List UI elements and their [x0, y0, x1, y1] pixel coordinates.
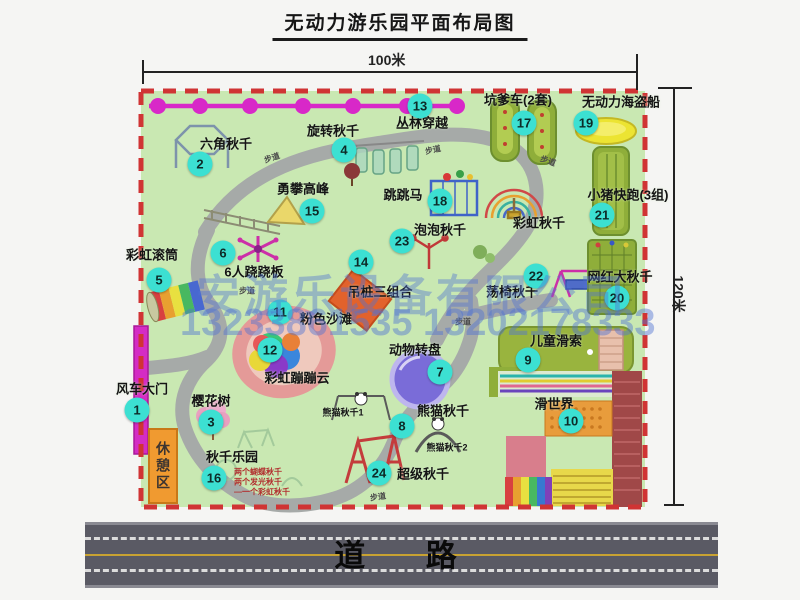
- extra-label-2: 熊猫秋千2: [426, 441, 467, 454]
- attraction-label-3: 樱花树: [191, 391, 230, 410]
- attraction-label-7: 动物转盘: [389, 340, 441, 359]
- attraction-badge-14: 14: [349, 250, 374, 275]
- attraction-badge-22: 22: [524, 264, 549, 289]
- attraction-badge-16: 16: [202, 466, 227, 491]
- walkway-label-4: 步道: [455, 317, 471, 328]
- attraction-badge-5: 5: [147, 268, 172, 293]
- swing-park-note-3: —一个彩虹秋千: [234, 487, 290, 498]
- road: 道 路: [85, 522, 718, 588]
- attraction-badge-21: 21: [590, 203, 615, 228]
- attraction-label-24: 超级秋千: [397, 464, 449, 483]
- attraction-label-14: 吊桩三组合: [347, 282, 412, 301]
- attraction-badge-8: 8: [390, 414, 415, 439]
- attraction-label-12: 彩虹蹦蹦云: [264, 368, 329, 387]
- attraction-badge-19: 19: [574, 111, 599, 136]
- attraction-label-1: 风车大门: [116, 379, 168, 398]
- attraction-label-11: 粉色沙滩: [300, 309, 352, 328]
- attraction-label-20: 网红大秋千: [587, 267, 652, 286]
- extra-label-1: 熊猫秋千1: [322, 406, 363, 419]
- attraction-label-21: 小猪快跑(3组): [588, 185, 669, 204]
- attraction-badge-15: 15: [300, 199, 325, 224]
- road-label: 道 路: [320, 531, 483, 576]
- extra-label-0: 彩虹秋千: [513, 213, 565, 232]
- attraction-badge-6: 6: [211, 241, 236, 266]
- attraction-label-19: 无动力海盗船: [582, 92, 660, 111]
- attraction-badge-2: 2: [188, 152, 213, 177]
- attraction-label-4: 旋转秋千: [307, 121, 359, 140]
- attraction-label-9: 儿童滑索: [530, 331, 582, 350]
- attraction-label-16: 秋千乐园: [206, 447, 258, 466]
- attraction-badge-3: 3: [199, 410, 224, 435]
- walkway-label-1: 步道: [424, 143, 442, 157]
- attraction-badge-4: 4: [332, 138, 357, 163]
- attraction-badge-18: 18: [428, 189, 453, 214]
- attraction-label-5: 彩虹滚筒: [126, 245, 178, 264]
- labels-layer: 风车大门1六角秋千2樱花树3旋转秋千4彩虹滚筒56人跷跷板6动物转盘7熊猫秋千8…: [0, 0, 800, 600]
- attraction-badge-7: 7: [428, 360, 453, 385]
- attraction-badge-13: 13: [408, 94, 433, 119]
- attraction-label-15: 勇攀高峰: [277, 179, 329, 198]
- attraction-label-18: 跳跳马: [383, 185, 422, 204]
- playground-plan-page: 无动力游乐园平面布局图 100米 120米 休憩区 风车大门1六角秋千2樱花树3…: [0, 0, 800, 600]
- attraction-label-8: 熊猫秋千: [417, 401, 469, 420]
- attraction-badge-11: 11: [268, 300, 293, 325]
- attraction-label-6: 6人跷跷板: [224, 262, 283, 281]
- attraction-badge-17: 17: [512, 111, 537, 136]
- attraction-badge-24: 24: [367, 461, 392, 486]
- attraction-label-17: 坑爹车(2套): [484, 90, 552, 109]
- attraction-badge-12: 12: [258, 338, 283, 363]
- attraction-label-23: 泡泡秋千: [414, 220, 466, 239]
- walkway-label-2: 步道: [539, 153, 558, 169]
- attraction-badge-10: 10: [559, 409, 584, 434]
- attraction-badge-23: 23: [390, 229, 415, 254]
- attraction-badge-1: 1: [125, 398, 150, 423]
- walkway-label-3: 步道: [239, 286, 255, 297]
- attraction-label-2: 六角秋千: [200, 134, 252, 153]
- attraction-badge-9: 9: [516, 348, 541, 373]
- attraction-badge-20: 20: [605, 286, 630, 311]
- walkway-label-5: 步道: [369, 490, 386, 503]
- walkway-label-0: 步道: [263, 150, 282, 165]
